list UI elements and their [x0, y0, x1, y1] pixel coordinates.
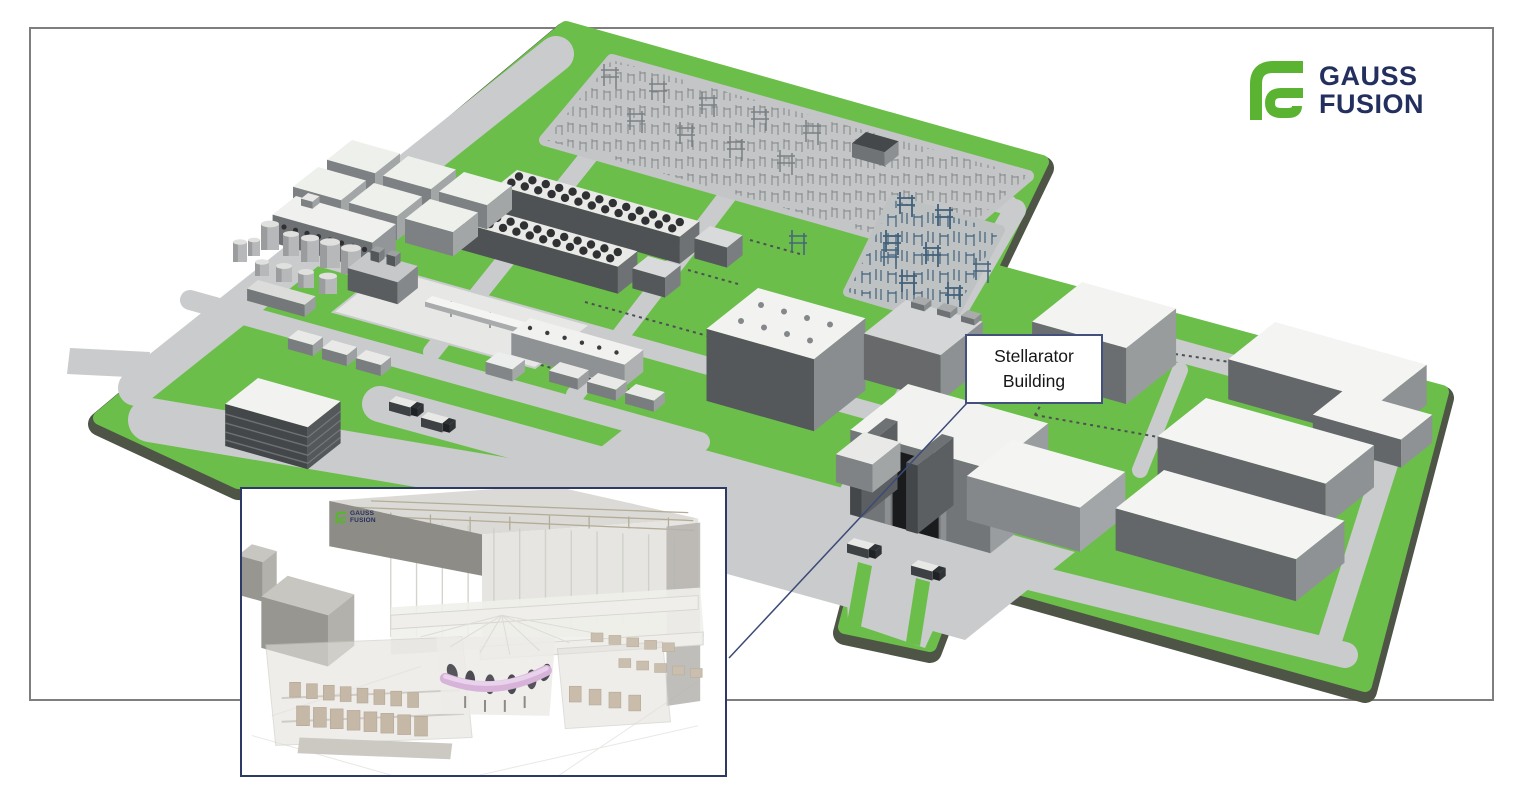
- gauss-fusion-logomark-icon: [334, 511, 347, 524]
- inset-gauss-fusion-logo: GAUSS FUSION: [334, 511, 376, 524]
- logo-word-2: FUSION: [1319, 90, 1424, 118]
- cutaway-room-right: [557, 642, 670, 729]
- stellarator-cutaway-art: [242, 489, 725, 775]
- gauss-fusion-logo: GAUSS FUSION: [1243, 58, 1424, 122]
- figure-canvas: GAUSS FUSION Stellarator Building: [0, 0, 1520, 789]
- gauss-fusion-logomark-icon: [1243, 58, 1307, 122]
- callout-line-1: Stellarator: [994, 344, 1074, 369]
- inset-wordmark: GAUSS FUSION: [350, 511, 376, 524]
- plinth: [298, 738, 453, 760]
- gauss-fusion-wordmark: GAUSS FUSION: [1319, 62, 1424, 118]
- stellarator-cutaway-inset: GAUSS FUSION: [240, 487, 727, 777]
- callout-line-2: Building: [1003, 369, 1065, 394]
- inset-logo-word-2: FUSION: [350, 518, 376, 525]
- west-gate-road: [67, 348, 150, 378]
- logo-word-1: GAUSS: [1319, 62, 1424, 90]
- stellarator-building-label: Stellarator Building: [965, 334, 1103, 404]
